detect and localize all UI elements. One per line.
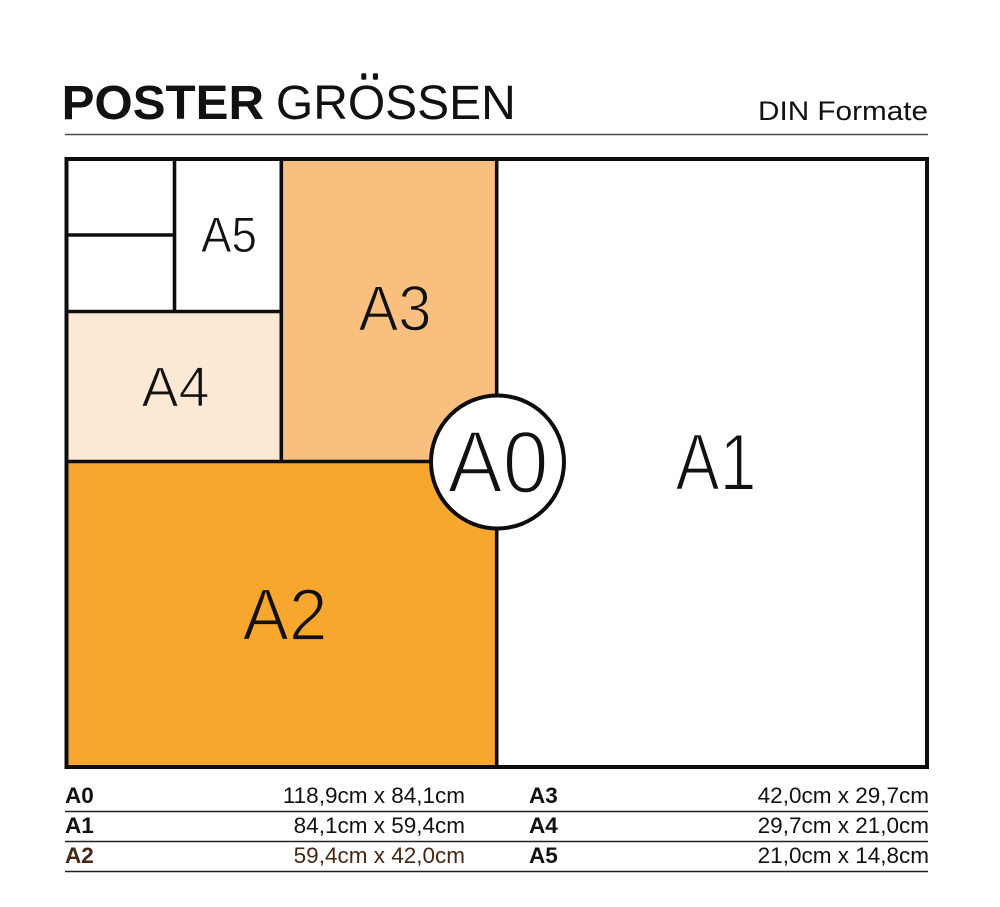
svg-text:42,0cm x 29,7cm: 42,0cm x 29,7cm xyxy=(758,783,929,808)
svg-text:59,4cm x 42,0cm: 59,4cm x 42,0cm xyxy=(294,843,465,868)
svg-text:A3: A3 xyxy=(359,273,432,345)
svg-text:A4: A4 xyxy=(142,356,210,420)
svg-text:A1: A1 xyxy=(676,418,757,508)
svg-text:A0: A0 xyxy=(448,413,549,512)
svg-text:A5: A5 xyxy=(529,843,558,868)
svg-text:A3: A3 xyxy=(529,783,558,808)
svg-text:POSTER: POSTER xyxy=(62,77,264,130)
svg-text:84,1cm x 59,4cm: 84,1cm x 59,4cm xyxy=(294,813,465,838)
svg-text:29,7cm x 21,0cm: 29,7cm x 21,0cm xyxy=(758,813,929,838)
svg-text:DIN Formate: DIN Formate xyxy=(758,96,928,126)
svg-text:A1: A1 xyxy=(65,813,94,838)
svg-text:21,0cm x 14,8cm: 21,0cm x 14,8cm xyxy=(758,843,929,868)
svg-text:A0: A0 xyxy=(65,783,94,808)
svg-text:118,9cm x 84,1cm: 118,9cm x 84,1cm xyxy=(283,783,465,808)
svg-text:GROSSEN: GROSSEN xyxy=(276,77,516,130)
svg-text:A5: A5 xyxy=(201,207,257,263)
svg-text:A2: A2 xyxy=(65,843,94,868)
svg-text:A4: A4 xyxy=(529,813,558,838)
svg-text:A2: A2 xyxy=(243,573,328,656)
